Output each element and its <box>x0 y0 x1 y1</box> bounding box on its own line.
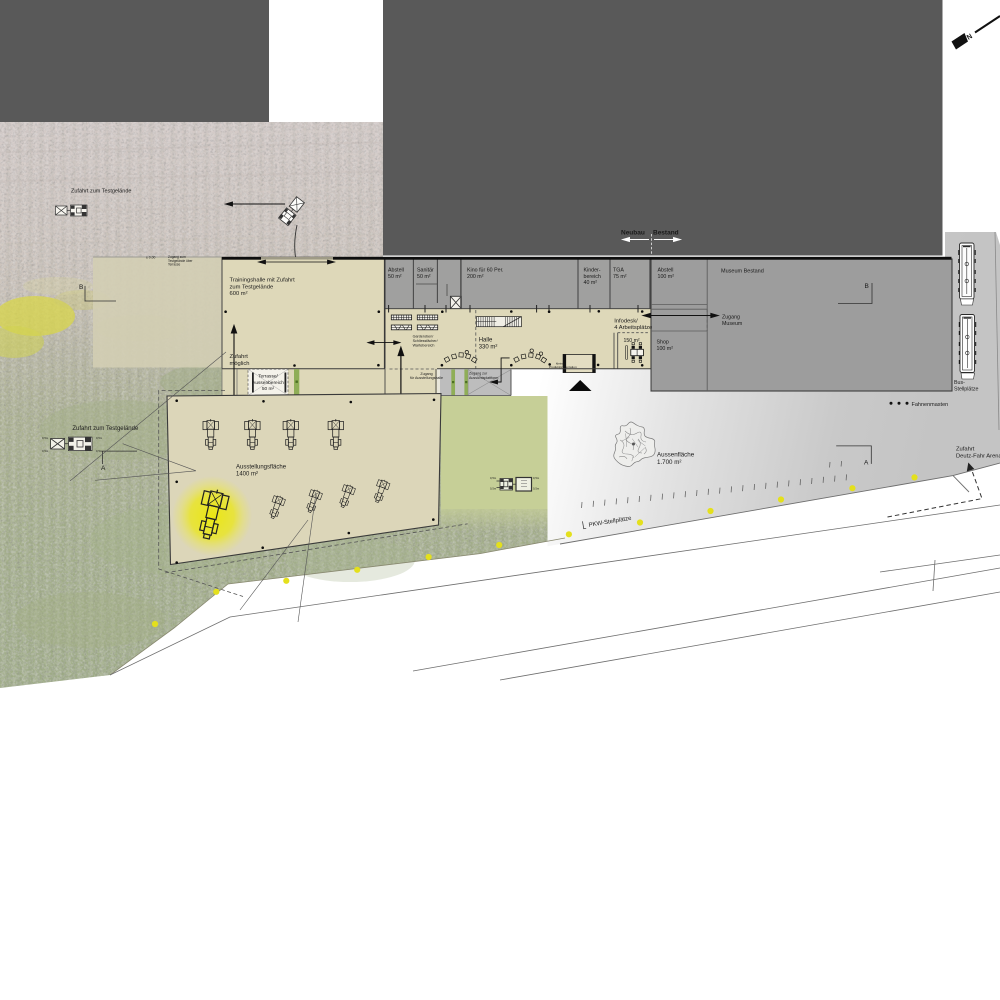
svg-text:Ausstellungsfläche: Ausstellungsfläche <box>236 465 287 471</box>
svg-text:zum Testgelände: zum Testgelände <box>230 284 274 290</box>
svg-text:1.700 m²: 1.700 m² <box>657 459 681 466</box>
svg-text:4 Arbeitsplätze: 4 Arbeitsplätze <box>614 325 652 331</box>
svg-text:Stellplätze: Stellplätze <box>954 386 978 392</box>
svg-text:50 m²: 50 m² <box>417 274 431 280</box>
svg-text:150 m²: 150 m² <box>624 338 640 344</box>
svg-text:50 m²: 50 m² <box>388 274 402 280</box>
svg-text:Sanitär: Sanitär <box>417 268 434 274</box>
svg-text:B: B <box>865 283 869 290</box>
svg-text:100 m²: 100 m² <box>657 346 674 352</box>
svg-text:Bus-: Bus- <box>954 380 965 386</box>
svg-text:Deutz-Fahr Arena: Deutz-Fahr Arena <box>956 453 1000 459</box>
svg-text:40 m²: 40 m² <box>584 280 598 286</box>
svg-text:Museum Bestand: Museum Bestand <box>721 269 764 275</box>
svg-text:für Ausstellungshalle: für Ausstellungshalle <box>410 376 443 380</box>
svg-text:Terrasse/: Terrasse/ <box>258 374 278 380</box>
svg-text:0,5m: 0,5m <box>96 449 103 453</box>
svg-text:Infodesk/: Infodesk/ <box>614 318 638 324</box>
svg-text:Kino für 60 Per.: Kino für 60 Per. <box>467 268 504 274</box>
svg-text:330 m²: 330 m² <box>479 345 498 351</box>
svg-text:Produktpräsentation: Produktpräsentation <box>549 365 577 369</box>
svg-text:Wartebereich: Wartebereich <box>413 343 435 347</box>
svg-text:Abstell: Abstell <box>658 268 674 274</box>
svg-text:Zufahrt zum Testgelände: Zufahrt zum Testgelände <box>71 189 131 195</box>
svg-text:Zufahrt: Zufahrt <box>230 354 249 360</box>
svg-text:0,5m: 0,5m <box>490 487 497 491</box>
svg-text:Kinder-: Kinder- <box>584 268 601 274</box>
svg-text:100 m²: 100 m² <box>658 274 675 280</box>
svg-text:Terrasse: Terrasse <box>168 263 180 267</box>
svg-text:Aussichtsplattform: Aussichtsplattform <box>469 376 498 380</box>
svg-text:600 m²: 600 m² <box>230 291 248 297</box>
svg-text:Zugang: Zugang <box>722 315 740 321</box>
svg-text:Garderoben/: Garderoben/ <box>413 335 435 339</box>
svg-text:TGA: TGA <box>613 268 624 274</box>
svg-text:A: A <box>864 460 869 467</box>
svg-text:A: A <box>101 465 106 472</box>
svg-text:Halle: Halle <box>479 338 493 344</box>
svg-text:± 0.00: ± 0.00 <box>146 256 156 260</box>
svg-text:0,5m: 0,5m <box>42 449 49 453</box>
svg-text:Trainingshalle mit Zufahrt: Trainingshalle mit Zufahrt <box>230 278 296 284</box>
svg-text:0,5m: 0,5m <box>42 436 49 440</box>
svg-text:0,5m: 0,5m <box>533 487 540 491</box>
svg-text:0,5m: 0,5m <box>490 476 497 480</box>
svg-text:0,5m: 0,5m <box>96 436 103 440</box>
svg-text:Zufahrt zum Testgelände: Zufahrt zum Testgelände <box>72 426 139 432</box>
svg-text:Schliessfächer/: Schliessfächer/ <box>413 339 439 343</box>
svg-text:bereich: bereich <box>584 274 601 280</box>
svg-text:Museum: Museum <box>722 321 743 327</box>
svg-text:50 m²: 50 m² <box>262 386 275 392</box>
svg-text:Abstell: Abstell <box>388 268 404 274</box>
svg-text:Zugang: Zugang <box>420 372 432 376</box>
svg-text:Aussenbereich: Aussenbereich <box>252 380 284 386</box>
svg-text:75 m²: 75 m² <box>613 274 627 280</box>
svg-text:Bestand: Bestand <box>653 230 679 237</box>
svg-text:möglich: möglich <box>230 361 250 367</box>
svg-text:B: B <box>79 284 83 291</box>
svg-text:1400 m²: 1400 m² <box>236 472 258 478</box>
svg-text:Zugang zur: Zugang zur <box>469 372 488 376</box>
svg-text:Neubau: Neubau <box>621 230 645 237</box>
svg-text:Zufahrt: Zufahrt <box>956 447 975 453</box>
svg-text:Shop: Shop <box>657 340 669 346</box>
svg-text:0,5m: 0,5m <box>533 476 540 480</box>
svg-text:Aussenfläche: Aussenfläche <box>657 452 695 459</box>
svg-text:Fahnenmasten: Fahnenmasten <box>912 402 949 408</box>
svg-text:200 m²: 200 m² <box>467 274 484 280</box>
